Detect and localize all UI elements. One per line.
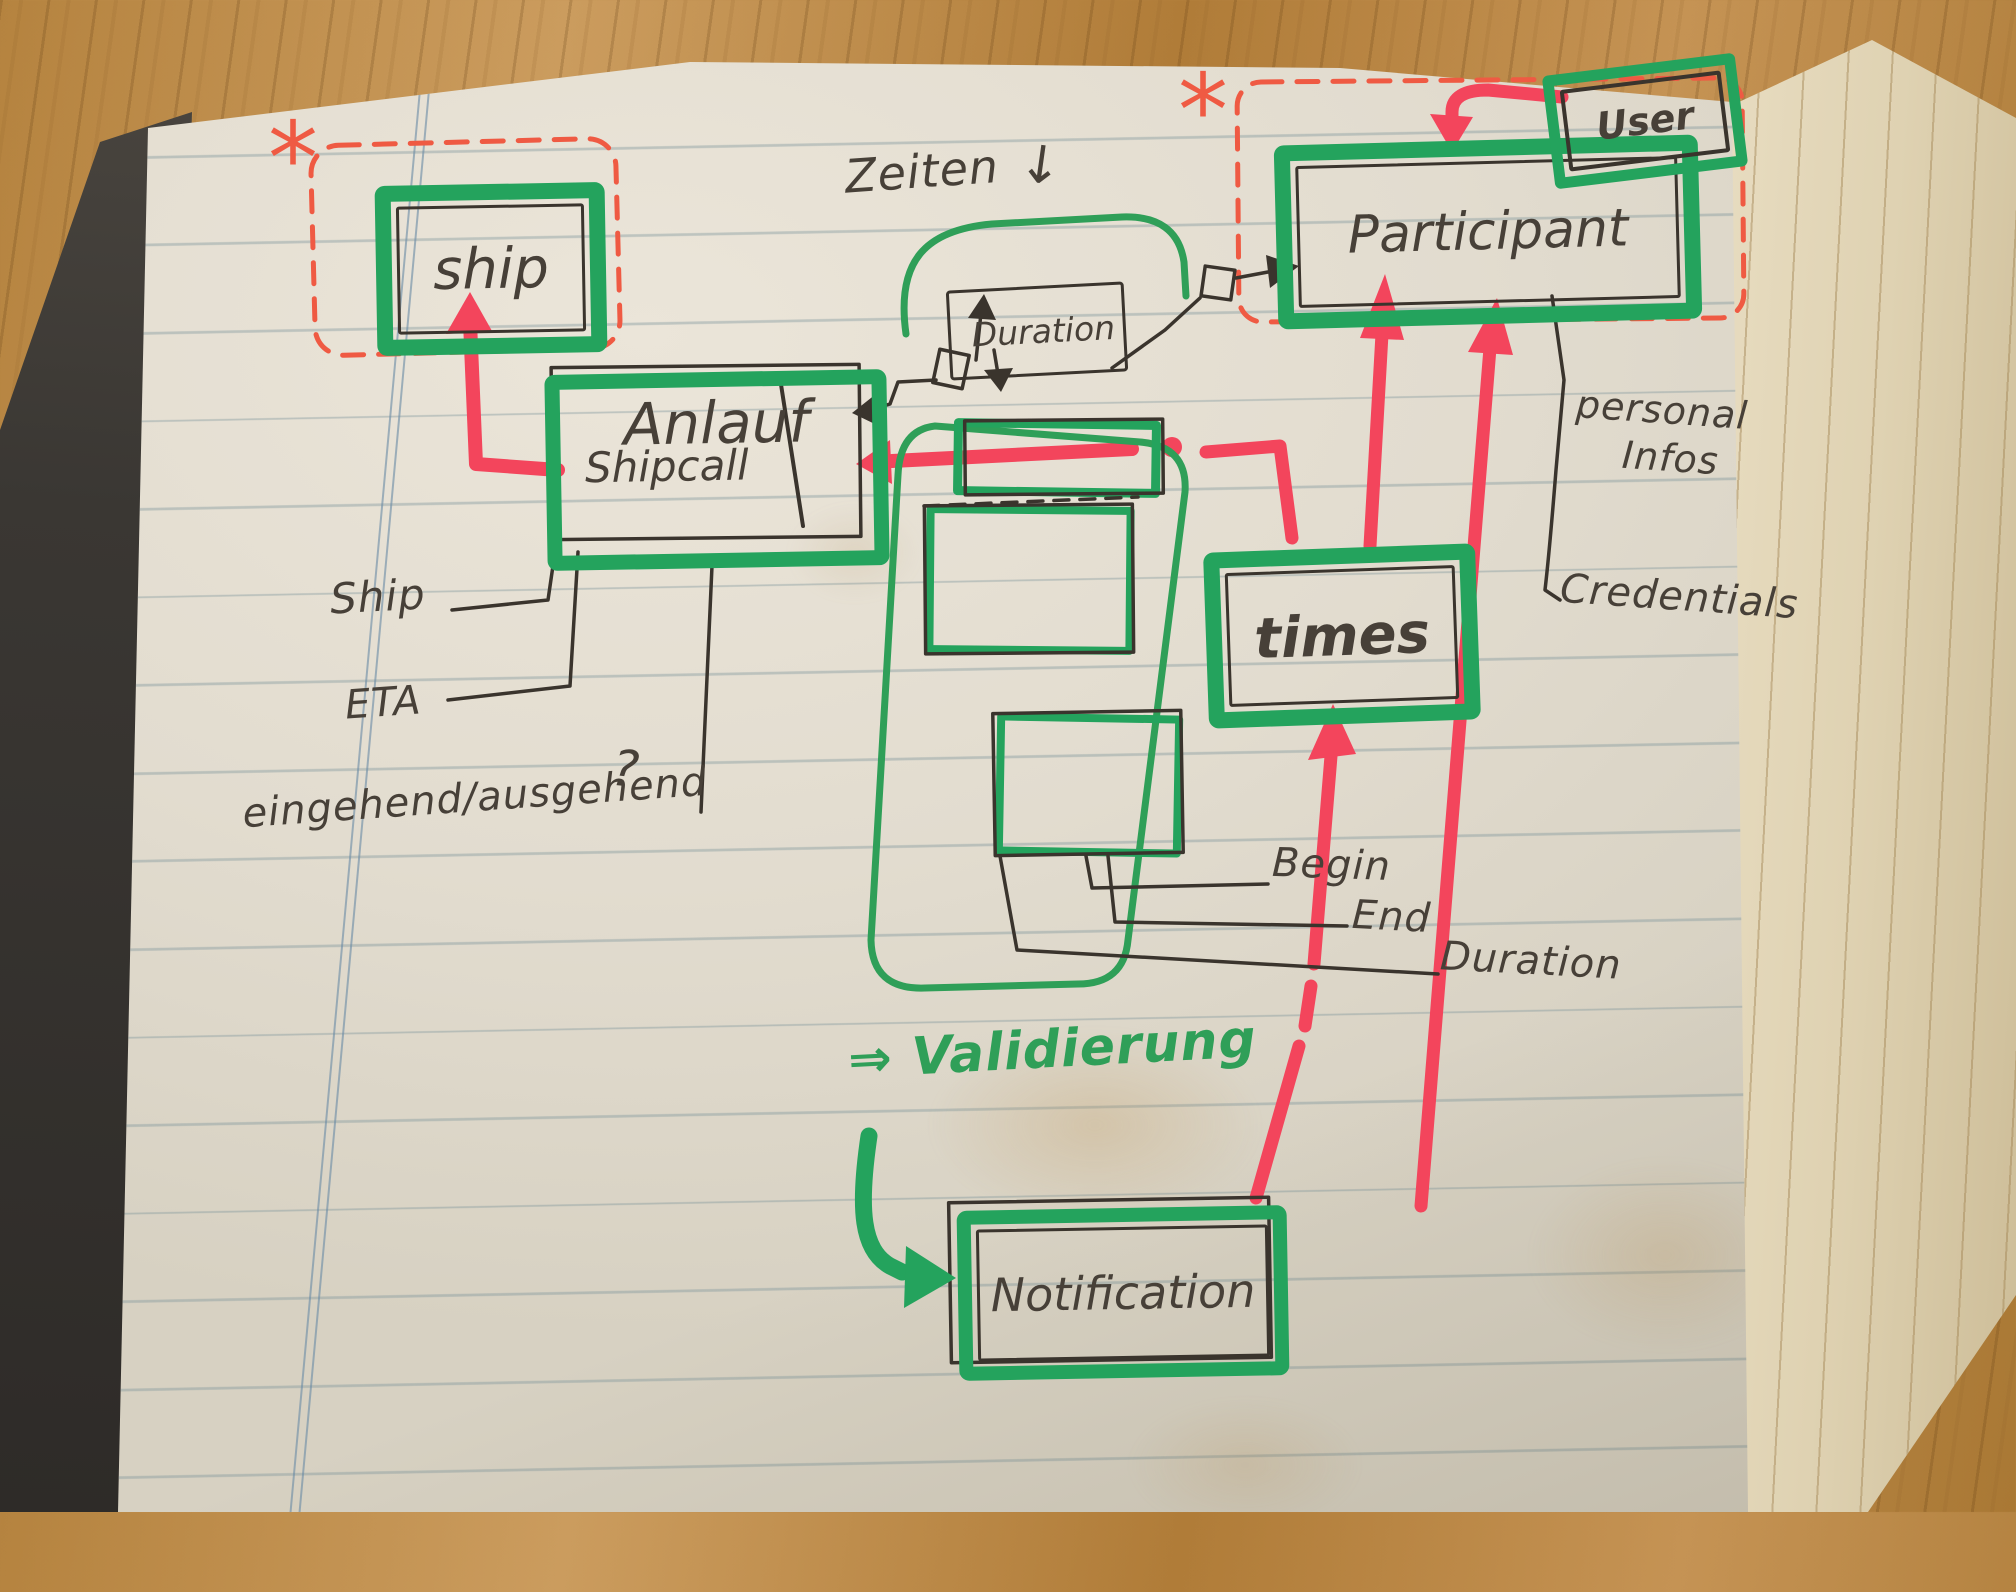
duration-attr-label: Duration bbox=[1439, 933, 1623, 988]
eta-attr-label: ETA bbox=[343, 677, 422, 728]
arrow-times-to-shipcall bbox=[892, 449, 1132, 461]
user-box: User bbox=[1542, 53, 1748, 190]
personal-infos-line2: Infos bbox=[1621, 433, 1721, 484]
inner-box-b-black bbox=[924, 504, 1133, 654]
user-label: User bbox=[1560, 70, 1731, 171]
green-hook-arrow bbox=[863, 1136, 902, 1272]
line-personal-credentials bbox=[1545, 296, 1564, 600]
notification-label: Notification bbox=[976, 1224, 1270, 1361]
shipcall-new-label: Shipcall bbox=[585, 440, 750, 492]
arrow-notification-to-participant bbox=[1421, 348, 1490, 1206]
asterisk-ship-icon: * bbox=[268, 100, 319, 217]
asterisk-participant-icon: * bbox=[1178, 52, 1229, 169]
line-begin bbox=[1086, 856, 1268, 888]
ship-label: ship bbox=[396, 203, 586, 334]
arrow-times-to-participant bbox=[1370, 334, 1382, 546]
line-ship-attr bbox=[452, 545, 556, 610]
times-box: times bbox=[1203, 543, 1481, 728]
notification-box: Notification bbox=[957, 1205, 1290, 1381]
line-eta-attr bbox=[448, 552, 578, 700]
arrow-notification-to-times-lower bbox=[1256, 1046, 1299, 1198]
connector-square-right bbox=[1201, 266, 1235, 300]
duration-box: Duration bbox=[946, 281, 1128, 380]
ship-attr-label: Ship bbox=[329, 570, 427, 624]
end-attr-label: End bbox=[1351, 892, 1432, 942]
notebook-photo: { "colors": { "marker_green": "#24a35d",… bbox=[0, 0, 2016, 1512]
red-bracket-times bbox=[1206, 446, 1292, 538]
down-arrow-icon: ↓ bbox=[1015, 133, 1067, 199]
inner-box-b-green bbox=[929, 509, 1130, 651]
line-duration-to-participant bbox=[1112, 272, 1268, 368]
shipcall-box: Anlauf Shipcall bbox=[544, 369, 889, 571]
arrow-notification-to-times-dash bbox=[1305, 986, 1311, 1026]
ship-box: ship bbox=[375, 182, 608, 356]
zeiten-text: Zeiten bbox=[843, 139, 1001, 210]
begin-attr-label: Begin bbox=[1271, 840, 1391, 890]
duration-label: Duration bbox=[971, 307, 1116, 353]
times-label: times bbox=[1225, 565, 1460, 707]
